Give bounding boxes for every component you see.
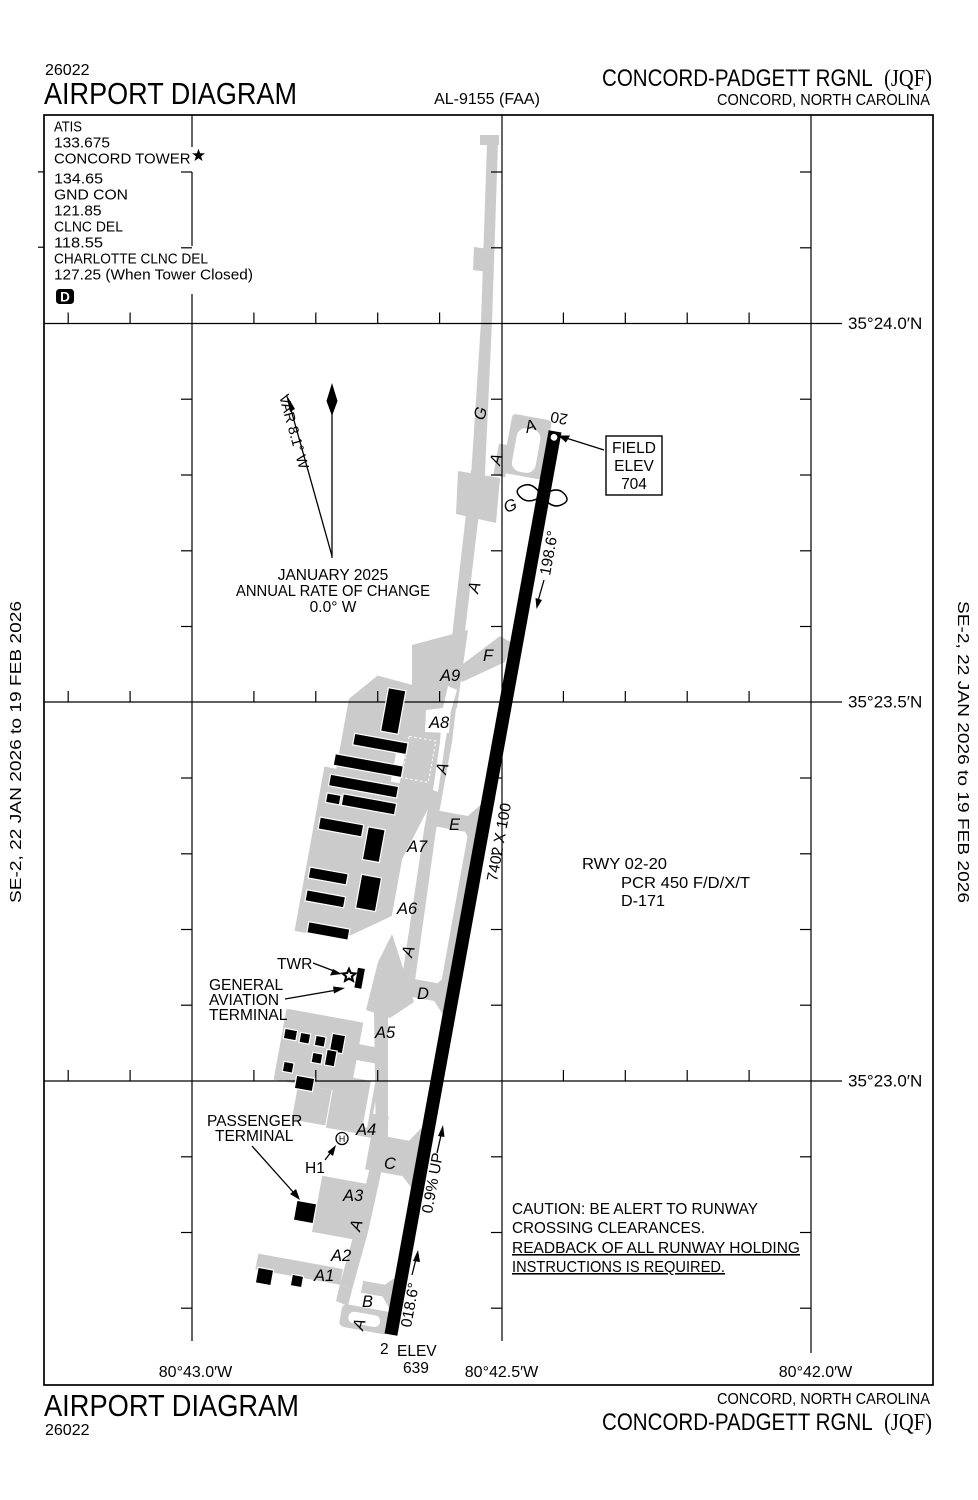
svg-text:A6: A6 (396, 900, 418, 918)
svg-text:ELEV: ELEV (397, 1343, 437, 1360)
svg-text:ATIS: ATIS (54, 119, 82, 136)
svg-text:E: E (449, 816, 461, 834)
svg-text:118.55: 118.55 (54, 235, 103, 252)
svg-text:CONCORD, NORTH CAROLINA: CONCORD, NORTH CAROLINA (717, 92, 930, 109)
svg-text:SE-2, 22 JAN 2026 to 19 FEB: SE-2, 22 JAN 2026 to 19 FEB 2026 (8, 601, 25, 903)
svg-text:ANNUAL RATE OF CHANGE: ANNUAL RATE OF CHANGE (236, 583, 430, 600)
svg-text:80°43.0′W: 80°43.0′W (159, 1364, 233, 1381)
svg-text:TERMINAL: TERMINAL (209, 1007, 288, 1024)
svg-text:C: C (384, 1155, 396, 1173)
svg-text:CHARLOTTE CLNC DEL: CHARLOTTE CLNC DEL (54, 251, 208, 268)
svg-text:CAUTION: BE ALERT TO RUNWAY: CAUTION: BE ALERT TO RUNWAY (512, 1201, 758, 1218)
svg-text:A7: A7 (406, 838, 428, 856)
svg-text:SE-2, 22 JAN 2026 to 19 FEB: SE-2, 22 JAN 2026 to 19 FEB 2026 (954, 601, 971, 903)
svg-text:TERMINAL: TERMINAL (215, 1128, 294, 1145)
svg-text:CONCORD-PADGETT RGNL (JQF): CONCORD-PADGETT RGNL (JQF) (602, 1409, 932, 1436)
svg-text:A2: A2 (330, 1247, 351, 1265)
svg-text:JANUARY 2025: JANUARY 2025 (278, 567, 389, 584)
svg-text:AIRPORT DIAGRAM: AIRPORT DIAGRAM (44, 76, 297, 111)
svg-text:134.65: 134.65 (54, 171, 103, 188)
svg-text:127.25 (When Tower Closed): 127.25 (When Tower Closed) (54, 267, 253, 284)
svg-text:CLNC DEL: CLNC DEL (54, 219, 123, 236)
svg-text:80°42.0′W: 80°42.0′W (779, 1364, 853, 1381)
svg-text:AL-9155 (FAA): AL-9155 (FAA) (434, 91, 540, 108)
svg-text:639: 639 (403, 1360, 429, 1377)
svg-text:0.0° W: 0.0° W (310, 599, 357, 616)
svg-text:AIRPORT DIAGRAM: AIRPORT DIAGRAM (44, 1388, 299, 1423)
svg-text:INSTRUCTIONS IS REQUIRED.: INSTRUCTIONS IS REQUIRED. (512, 1259, 725, 1276)
svg-text:D: D (417, 985, 429, 1003)
svg-text:PCR 450 F/D/X/T: PCR 450 F/D/X/T (621, 875, 751, 892)
svg-text:2: 2 (380, 1341, 389, 1358)
svg-text:A9: A9 (439, 667, 460, 685)
svg-text:A3: A3 (342, 1187, 364, 1205)
svg-text:35°24.0′N: 35°24.0′N (848, 314, 922, 333)
svg-text:35°23.0′N: 35°23.0′N (848, 1072, 922, 1091)
svg-text:ELEV: ELEV (614, 458, 654, 475)
svg-text:A4: A4 (355, 1121, 376, 1139)
svg-text:133.675: 133.675 (54, 135, 110, 152)
svg-text:D-171: D-171 (621, 893, 665, 910)
svg-text:CONCORD, NORTH CAROLINA: CONCORD, NORTH CAROLINA (717, 1391, 930, 1408)
svg-text:CROSSING CLEARANCES.: CROSSING CLEARANCES. (512, 1220, 705, 1237)
svg-text:TWR: TWR (277, 956, 312, 973)
svg-text:A5: A5 (374, 1024, 396, 1042)
svg-text:121.85: 121.85 (54, 203, 102, 220)
svg-text:GND CON: GND CON (54, 187, 128, 204)
svg-text:20: 20 (549, 407, 569, 427)
svg-text:A1: A1 (313, 1267, 334, 1285)
svg-text:H: H (339, 1134, 345, 1144)
svg-text:80°42.5′W: 80°42.5′W (465, 1364, 539, 1381)
svg-text:RWY 02-20: RWY 02-20 (582, 856, 667, 873)
svg-text:26022: 26022 (45, 1422, 90, 1439)
svg-text:A8: A8 (428, 714, 450, 732)
svg-text:CONCORD TOWER: CONCORD TOWER (54, 151, 191, 168)
svg-text:FIELD: FIELD (612, 440, 656, 457)
svg-text:H1: H1 (305, 1160, 325, 1177)
svg-text:B: B (362, 1293, 373, 1311)
svg-text:READBACK OF ALL RUNWAY HOLDING: READBACK OF ALL RUNWAY HOLDING (512, 1240, 800, 1257)
svg-text:35°23.5′N: 35°23.5′N (848, 693, 922, 712)
svg-text:CONCORD-PADGETT RGNL (JQF): CONCORD-PADGETT RGNL (JQF) (602, 65, 932, 92)
svg-text:D: D (60, 290, 70, 305)
svg-text:F: F (483, 647, 494, 665)
svg-text:704: 704 (621, 476, 647, 493)
